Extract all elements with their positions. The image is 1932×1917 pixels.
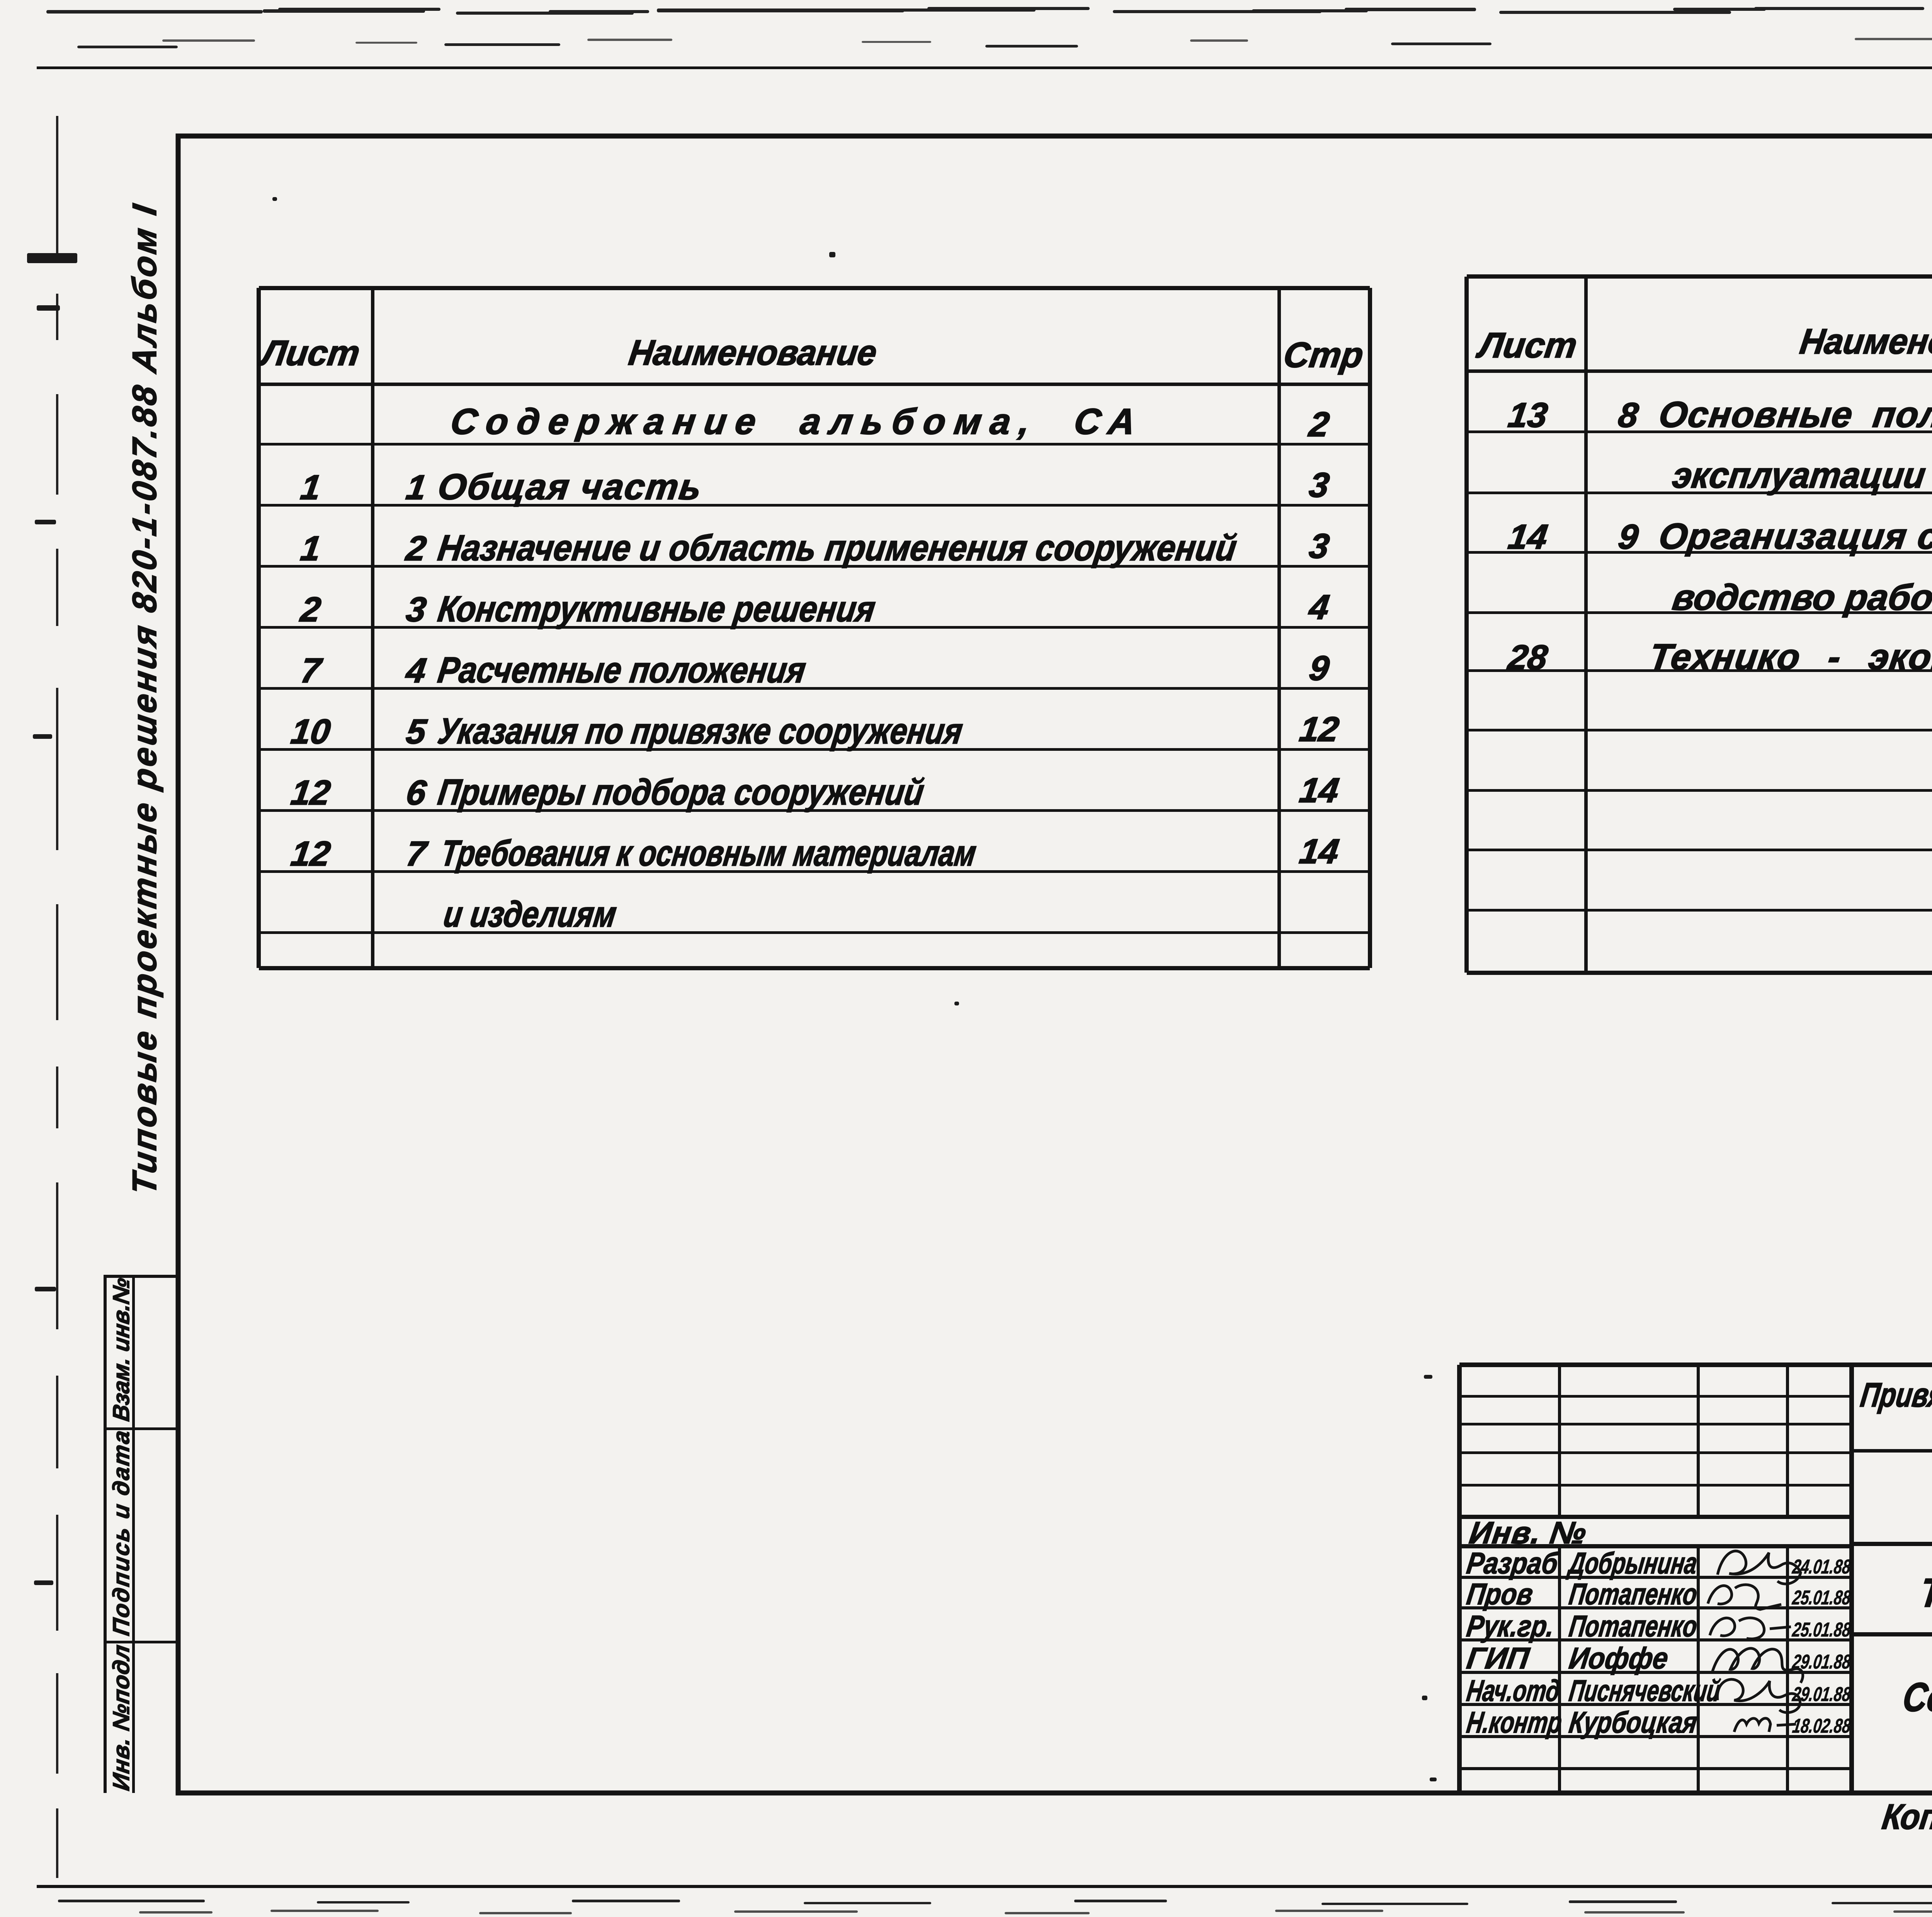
svg-text:Н.контр: Н.контр <box>1465 1705 1564 1739</box>
svg-text:Взам. инв.№: Взам. инв.№ <box>108 1276 134 1423</box>
svg-text:12: 12 <box>1297 710 1341 749</box>
svg-text:7: 7 <box>298 651 325 690</box>
svg-text:5: 5 <box>404 712 429 751</box>
svg-text:Привязан: Привязан <box>1858 1376 1932 1414</box>
svg-text:18.02.88: 18.02.88 <box>1791 1715 1852 1737</box>
svg-text:Конструктивные решения: Конструктивные решения <box>435 589 878 629</box>
svg-text:Подпись и дата: Подпись и дата <box>108 1429 134 1637</box>
svg-text:4: 4 <box>403 651 429 690</box>
svg-text:2: 2 <box>1306 405 1332 444</box>
svg-text:14: 14 <box>1297 832 1341 871</box>
svg-text:Иоффе: Иоффе <box>1567 1641 1670 1675</box>
svg-text:Курбоцкая: Курбоцкая <box>1567 1705 1699 1739</box>
svg-text:2: 2 <box>403 529 429 568</box>
svg-text:Требования к основным материал: Требования к основным материалам <box>439 833 979 873</box>
svg-text:7: 7 <box>404 834 430 873</box>
svg-text:14: 14 <box>1297 771 1341 810</box>
svg-text:Указания по привязке сооружени: Указания по привязке сооружения <box>435 711 965 751</box>
svg-text:Пров: Пров <box>1465 1577 1535 1611</box>
svg-text:ТПР 820 - 1 - 087. 88 - СА: ТПР 820 - 1 - 087. 88 - СА <box>1917 1570 1932 1615</box>
svg-text:Инв. №подл: Инв. №подл <box>108 1643 134 1792</box>
svg-text:Инв. №: Инв. № <box>1467 1516 1588 1550</box>
svg-text:Разраб: Разраб <box>1465 1546 1561 1580</box>
svg-text:1: 1 <box>298 468 323 507</box>
svg-text:4: 4 <box>1306 588 1332 627</box>
svg-text:9: 9 <box>1307 649 1332 688</box>
svg-text:Типовые проектные решения 820-: Типовые проектные решения 820-1-087.88 А… <box>125 201 163 1197</box>
svg-text:1: 1 <box>298 529 323 568</box>
svg-text:12: 12 <box>289 834 333 873</box>
svg-text:Общая часть: Общая часть <box>435 466 704 507</box>
svg-text:Стр: Стр <box>1281 335 1366 374</box>
svg-text:12: 12 <box>289 773 333 812</box>
svg-text:8: 8 <box>1616 396 1641 435</box>
svg-text:Наименование: Наименование <box>1798 321 1932 361</box>
svg-text:13: 13 <box>1506 396 1550 435</box>
svg-text:3: 3 <box>1307 466 1332 505</box>
svg-text:Примеры подбора сооружений: Примеры подбора сооружений <box>435 772 927 812</box>
svg-text:Потапенко: Потапенко <box>1567 1609 1699 1643</box>
svg-text:3: 3 <box>1307 527 1332 566</box>
svg-text:Расчетные положения: Расчетные положения <box>435 650 808 690</box>
svg-text:и изделиям: и изделиям <box>441 894 619 934</box>
svg-text:10: 10 <box>289 712 333 751</box>
svg-text:3: 3 <box>404 590 429 629</box>
svg-text:Технико - экономические показа: Технико - экономические показатели <box>1647 636 1932 677</box>
svg-text:Содержание: Содержание <box>1900 1674 1932 1720</box>
svg-text:Назначение и область применени: Назначение и область применения сооружен… <box>435 527 1239 568</box>
svg-text:Писнячевский: Писнячевский <box>1567 1674 1723 1708</box>
svg-text:Потапенко: Потапенко <box>1567 1577 1699 1611</box>
svg-text:водство работ: водство работ <box>1670 577 1932 617</box>
svg-text:ГИП: ГИП <box>1465 1641 1532 1675</box>
svg-text:25.01.88: 25.01.88 <box>1791 1619 1852 1641</box>
svg-text:6: 6 <box>404 773 429 812</box>
svg-text:14: 14 <box>1506 517 1550 556</box>
svg-text:Наименование: Наименование <box>626 332 879 372</box>
svg-text:эксплуатации сооружений: эксплуатации сооружений <box>1670 455 1932 495</box>
svg-text:Лист: Лист <box>257 333 362 373</box>
svg-text:Лист: Лист <box>1474 325 1580 365</box>
svg-text:Рук.гр.: Рук.гр. <box>1465 1609 1556 1643</box>
svg-text:Копировал:: Копировал: <box>1880 1796 1932 1836</box>
svg-text:2: 2 <box>298 590 323 629</box>
svg-text:Основные положения по техничес: Основные положения по технической <box>1656 394 1932 435</box>
svg-text:1: 1 <box>404 468 429 507</box>
svg-text:28: 28 <box>1505 638 1550 677</box>
svg-text:Добрынина: Добрынина <box>1565 1546 1699 1580</box>
svg-text:25.01.88: 25.01.88 <box>1791 1587 1852 1609</box>
svg-text:Нач.отд: Нач.отд <box>1465 1674 1562 1708</box>
svg-text:9: 9 <box>1616 517 1641 556</box>
svg-text:Организация строительство и пр: Организация строительство и произ- <box>1656 516 1932 556</box>
svg-text:Содержание альбома, СА: Содержание альбома, СА <box>448 401 1138 442</box>
